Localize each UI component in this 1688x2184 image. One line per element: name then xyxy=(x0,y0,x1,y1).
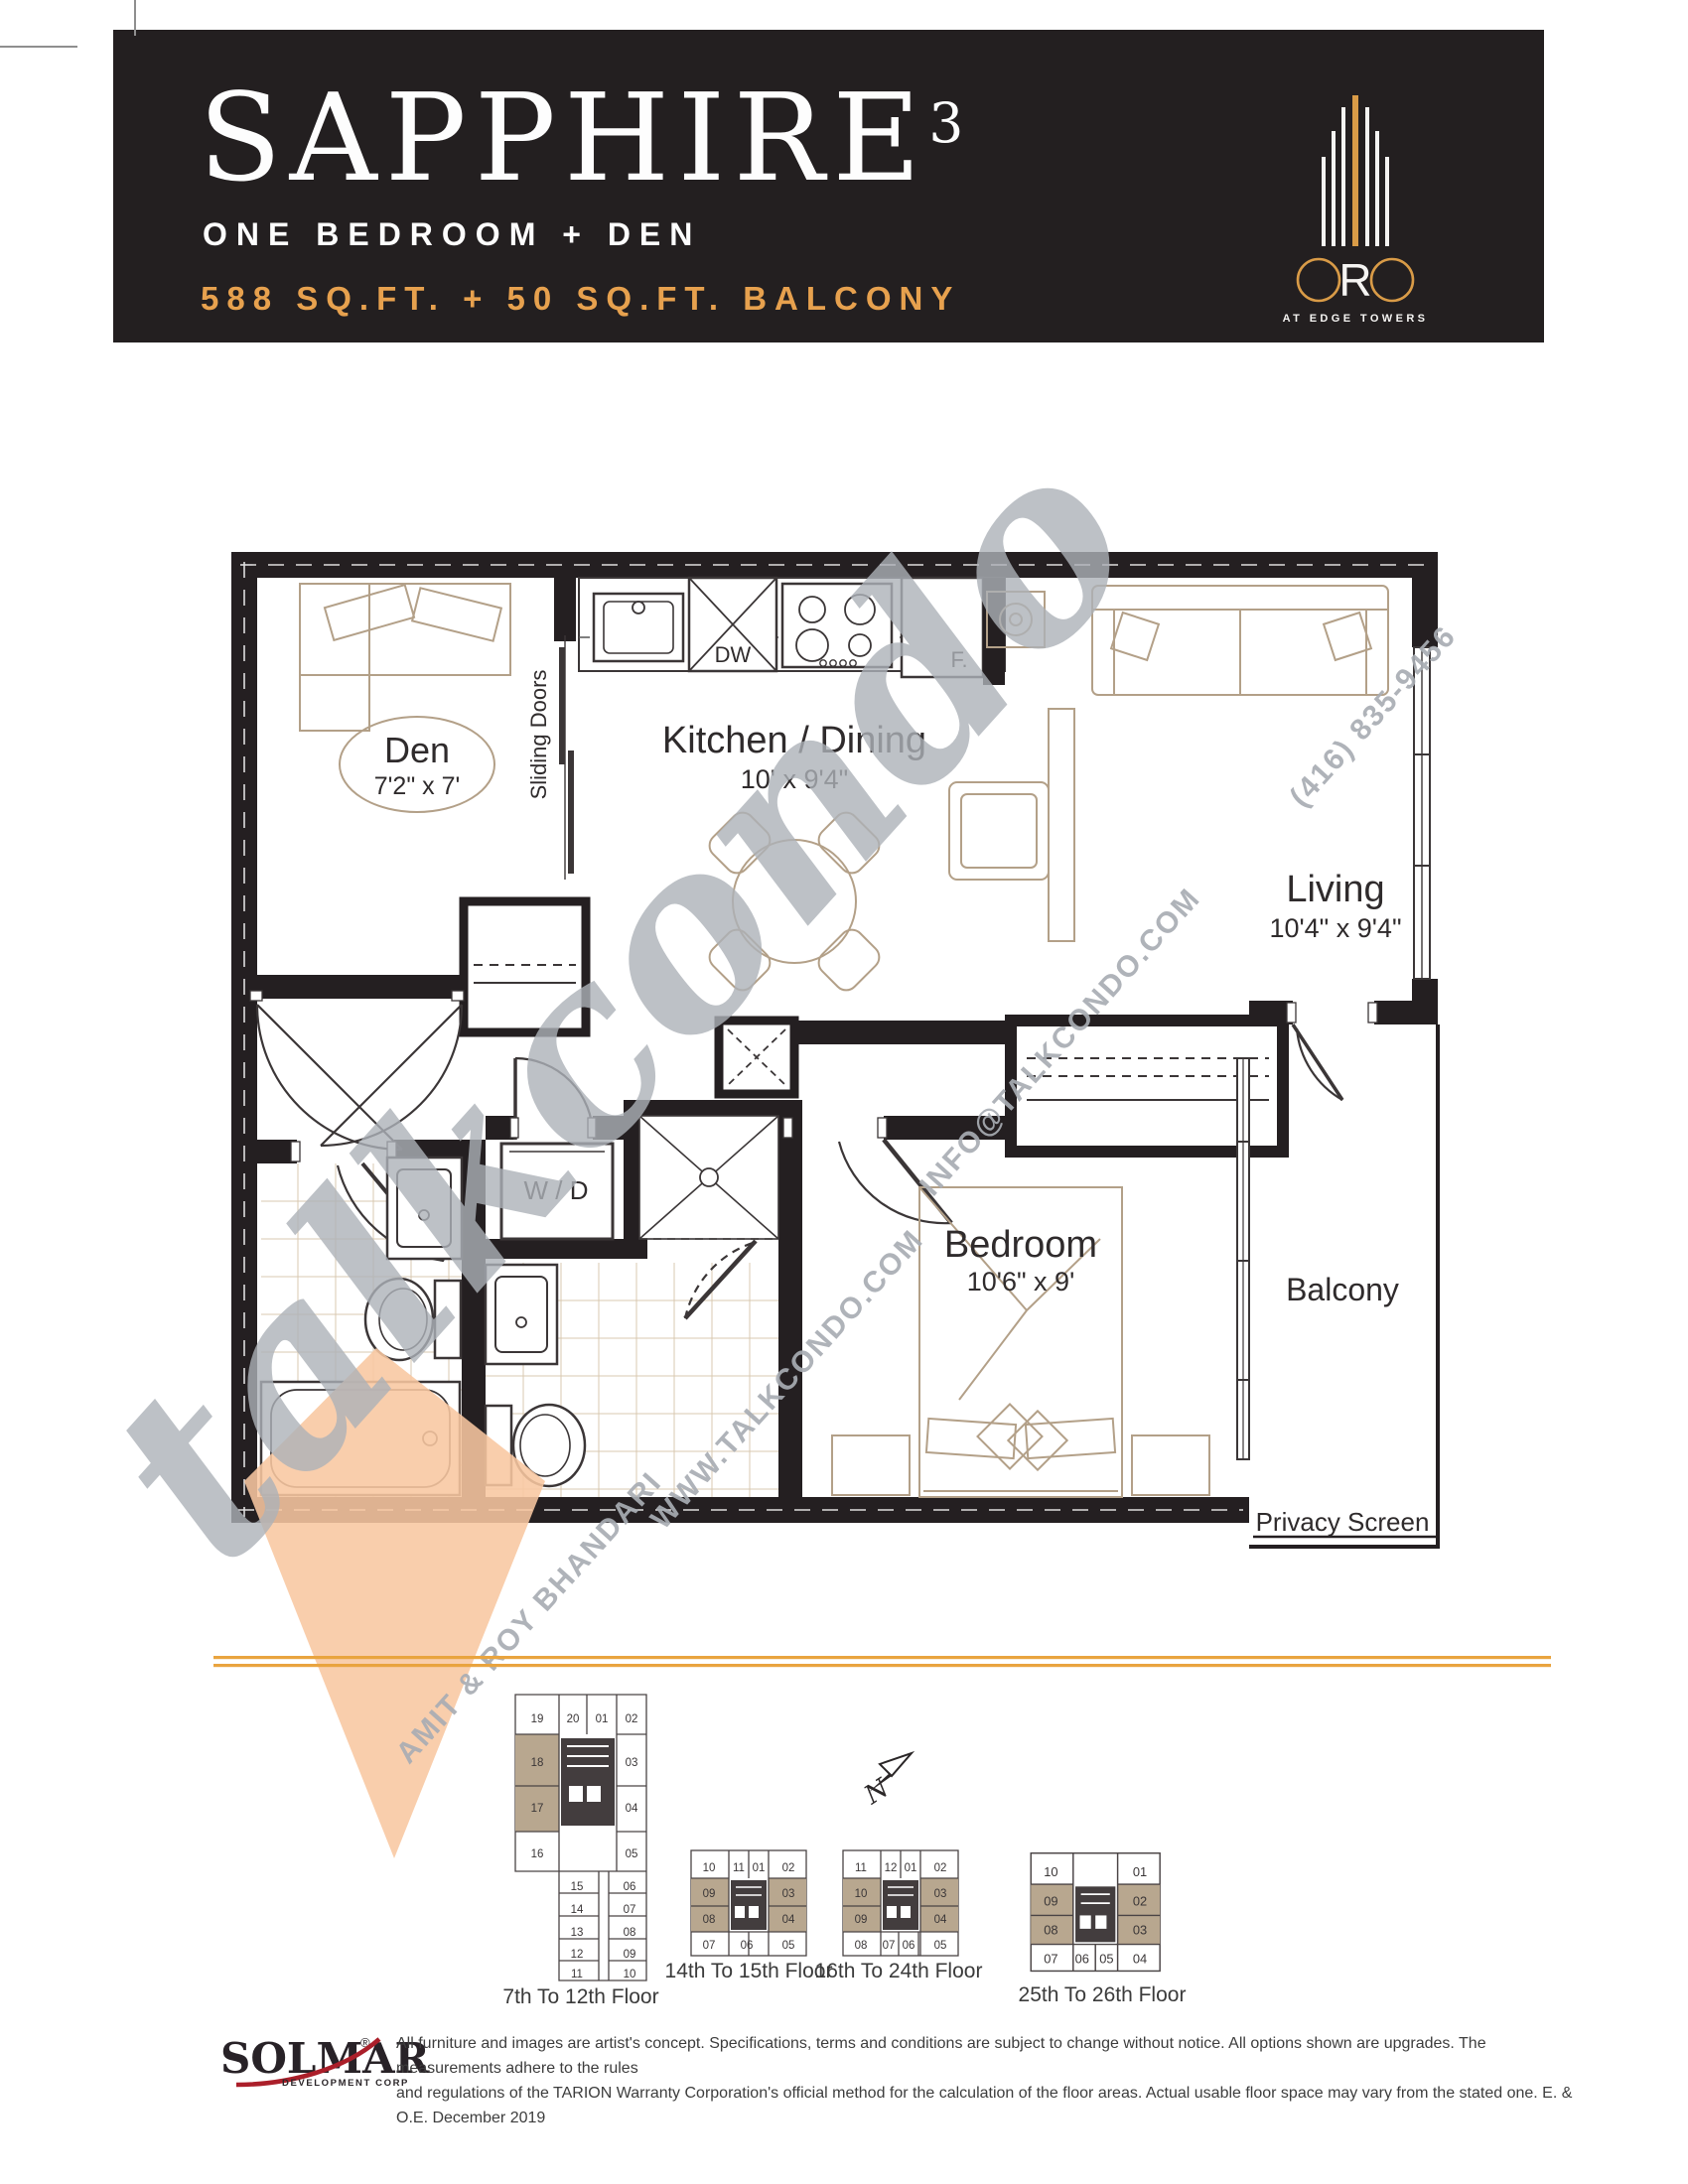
svg-text:10: 10 xyxy=(1044,1864,1057,1879)
keyplan-14-15-caption: 14th To 15th Floor xyxy=(665,1960,833,1982)
svg-text:01: 01 xyxy=(596,1713,609,1725)
svg-text:04: 04 xyxy=(626,1803,638,1815)
svg-text:05: 05 xyxy=(1099,1952,1113,1967)
svg-text:08: 08 xyxy=(855,1940,868,1952)
den-sofa xyxy=(300,584,510,731)
svg-text:18: 18 xyxy=(531,1757,544,1769)
keyplan-7-12: 19 20 01 02 18 03 17 04 16 05 15 06 14 0… xyxy=(515,1695,646,1980)
svg-text:02: 02 xyxy=(782,1862,795,1874)
svg-text:06: 06 xyxy=(741,1940,754,1952)
svg-text:05: 05 xyxy=(934,1940,947,1952)
privacy-screen-label: Privacy Screen xyxy=(1256,1507,1430,1537)
svg-text:08: 08 xyxy=(1044,1922,1057,1937)
solmar-subtext: DEVELOPMENT CORP xyxy=(282,2078,409,2089)
svg-text:06: 06 xyxy=(624,1881,636,1893)
svg-text:02: 02 xyxy=(1133,1893,1147,1908)
svg-text:03: 03 xyxy=(626,1757,638,1769)
svg-text:07: 07 xyxy=(883,1940,896,1952)
bedroom-label: Bedroom xyxy=(944,1224,1097,1266)
living-label: Living xyxy=(1286,869,1384,910)
svg-text:01: 01 xyxy=(905,1862,917,1874)
svg-text:08: 08 xyxy=(624,1927,636,1939)
north-arrow-icon: N xyxy=(859,1753,912,1811)
svg-text:09: 09 xyxy=(855,1914,868,1926)
svg-text:04: 04 xyxy=(934,1914,947,1926)
svg-text:03: 03 xyxy=(782,1888,795,1900)
svg-text:19: 19 xyxy=(531,1713,544,1725)
keyplan-16-24: 11 12 01 02 10 03 09 04 08 07 06 05 xyxy=(843,1850,958,1956)
svg-text:11: 11 xyxy=(733,1862,745,1874)
svg-text:10: 10 xyxy=(703,1862,716,1874)
svg-text:13: 13 xyxy=(571,1927,584,1939)
svg-text:06: 06 xyxy=(1075,1952,1089,1967)
svg-text:20: 20 xyxy=(567,1713,580,1725)
keyplan-14-15: 10 11 01 02 09 03 08 04 07 06 05 xyxy=(691,1850,806,1956)
svg-text:14: 14 xyxy=(571,1904,584,1916)
svg-text:04: 04 xyxy=(1133,1952,1147,1967)
svg-text:06: 06 xyxy=(903,1940,915,1952)
svg-text:03: 03 xyxy=(1133,1922,1147,1937)
svg-text:09: 09 xyxy=(624,1949,636,1961)
keyplan-25-26-caption: 25th To 26th Floor xyxy=(1019,1983,1187,2006)
bedroom-dims: 10'6" x 9' xyxy=(967,1267,1074,1297)
svg-text:09: 09 xyxy=(1044,1893,1057,1908)
sliding-doors-label: Sliding Doors xyxy=(526,670,551,800)
svg-text:02: 02 xyxy=(934,1862,947,1874)
svg-text:15: 15 xyxy=(571,1881,584,1893)
svg-text:10: 10 xyxy=(624,1969,636,1980)
crop-marks xyxy=(0,0,135,47)
keyplan-16-24-caption: 16th To 24th Floor xyxy=(815,1960,983,1982)
svg-text:04: 04 xyxy=(782,1914,795,1926)
svg-text:01: 01 xyxy=(753,1862,766,1874)
watermark-phone: (416) 835-9456 xyxy=(1284,619,1464,813)
disclaimer: All furniture and images are artist's co… xyxy=(396,2031,1573,2130)
den-label: Den xyxy=(384,730,450,770)
keyplan-7-12-caption: 7th To 12th Floor xyxy=(502,1985,658,2008)
svg-text:12: 12 xyxy=(571,1949,584,1961)
svg-text:05: 05 xyxy=(782,1940,795,1952)
svg-text:05: 05 xyxy=(626,1848,638,1860)
svg-text:16: 16 xyxy=(531,1848,544,1860)
svg-text:08: 08 xyxy=(703,1914,716,1926)
svg-text:17: 17 xyxy=(531,1803,544,1815)
disclaimer-line-1: All furniture and images are artist's co… xyxy=(396,2031,1573,2081)
floorplan-page: SAPPHIRE3 ONE BEDROOM + DEN 588 SQ.FT. +… xyxy=(0,0,1688,2184)
svg-text:10: 10 xyxy=(855,1888,868,1900)
svg-text:07: 07 xyxy=(703,1940,716,1952)
disclaimer-line-2: and regulations of the TARION Warranty C… xyxy=(396,2081,1573,2130)
den-dims: 7'2" x 7' xyxy=(374,772,461,800)
svg-text:09: 09 xyxy=(703,1888,716,1900)
keyplan-25-26: 10 01 09 02 08 03 07 06 05 04 xyxy=(1031,1853,1160,1972)
svg-text:11: 11 xyxy=(855,1862,867,1874)
svg-text:07: 07 xyxy=(624,1904,636,1916)
balcony-label: Balcony xyxy=(1286,1272,1399,1307)
svg-text:03: 03 xyxy=(934,1888,947,1900)
svg-text:11: 11 xyxy=(571,1969,583,1980)
north-label: N xyxy=(859,1773,896,1812)
floor-plan-canvas: DW F. xyxy=(0,0,1688,2184)
svg-text:07: 07 xyxy=(1044,1952,1057,1967)
living-dims: 10'4" x 9'4" xyxy=(1269,913,1401,943)
svg-text:12: 12 xyxy=(885,1862,898,1874)
svg-text:01: 01 xyxy=(1133,1864,1147,1879)
svg-text:02: 02 xyxy=(626,1713,638,1725)
